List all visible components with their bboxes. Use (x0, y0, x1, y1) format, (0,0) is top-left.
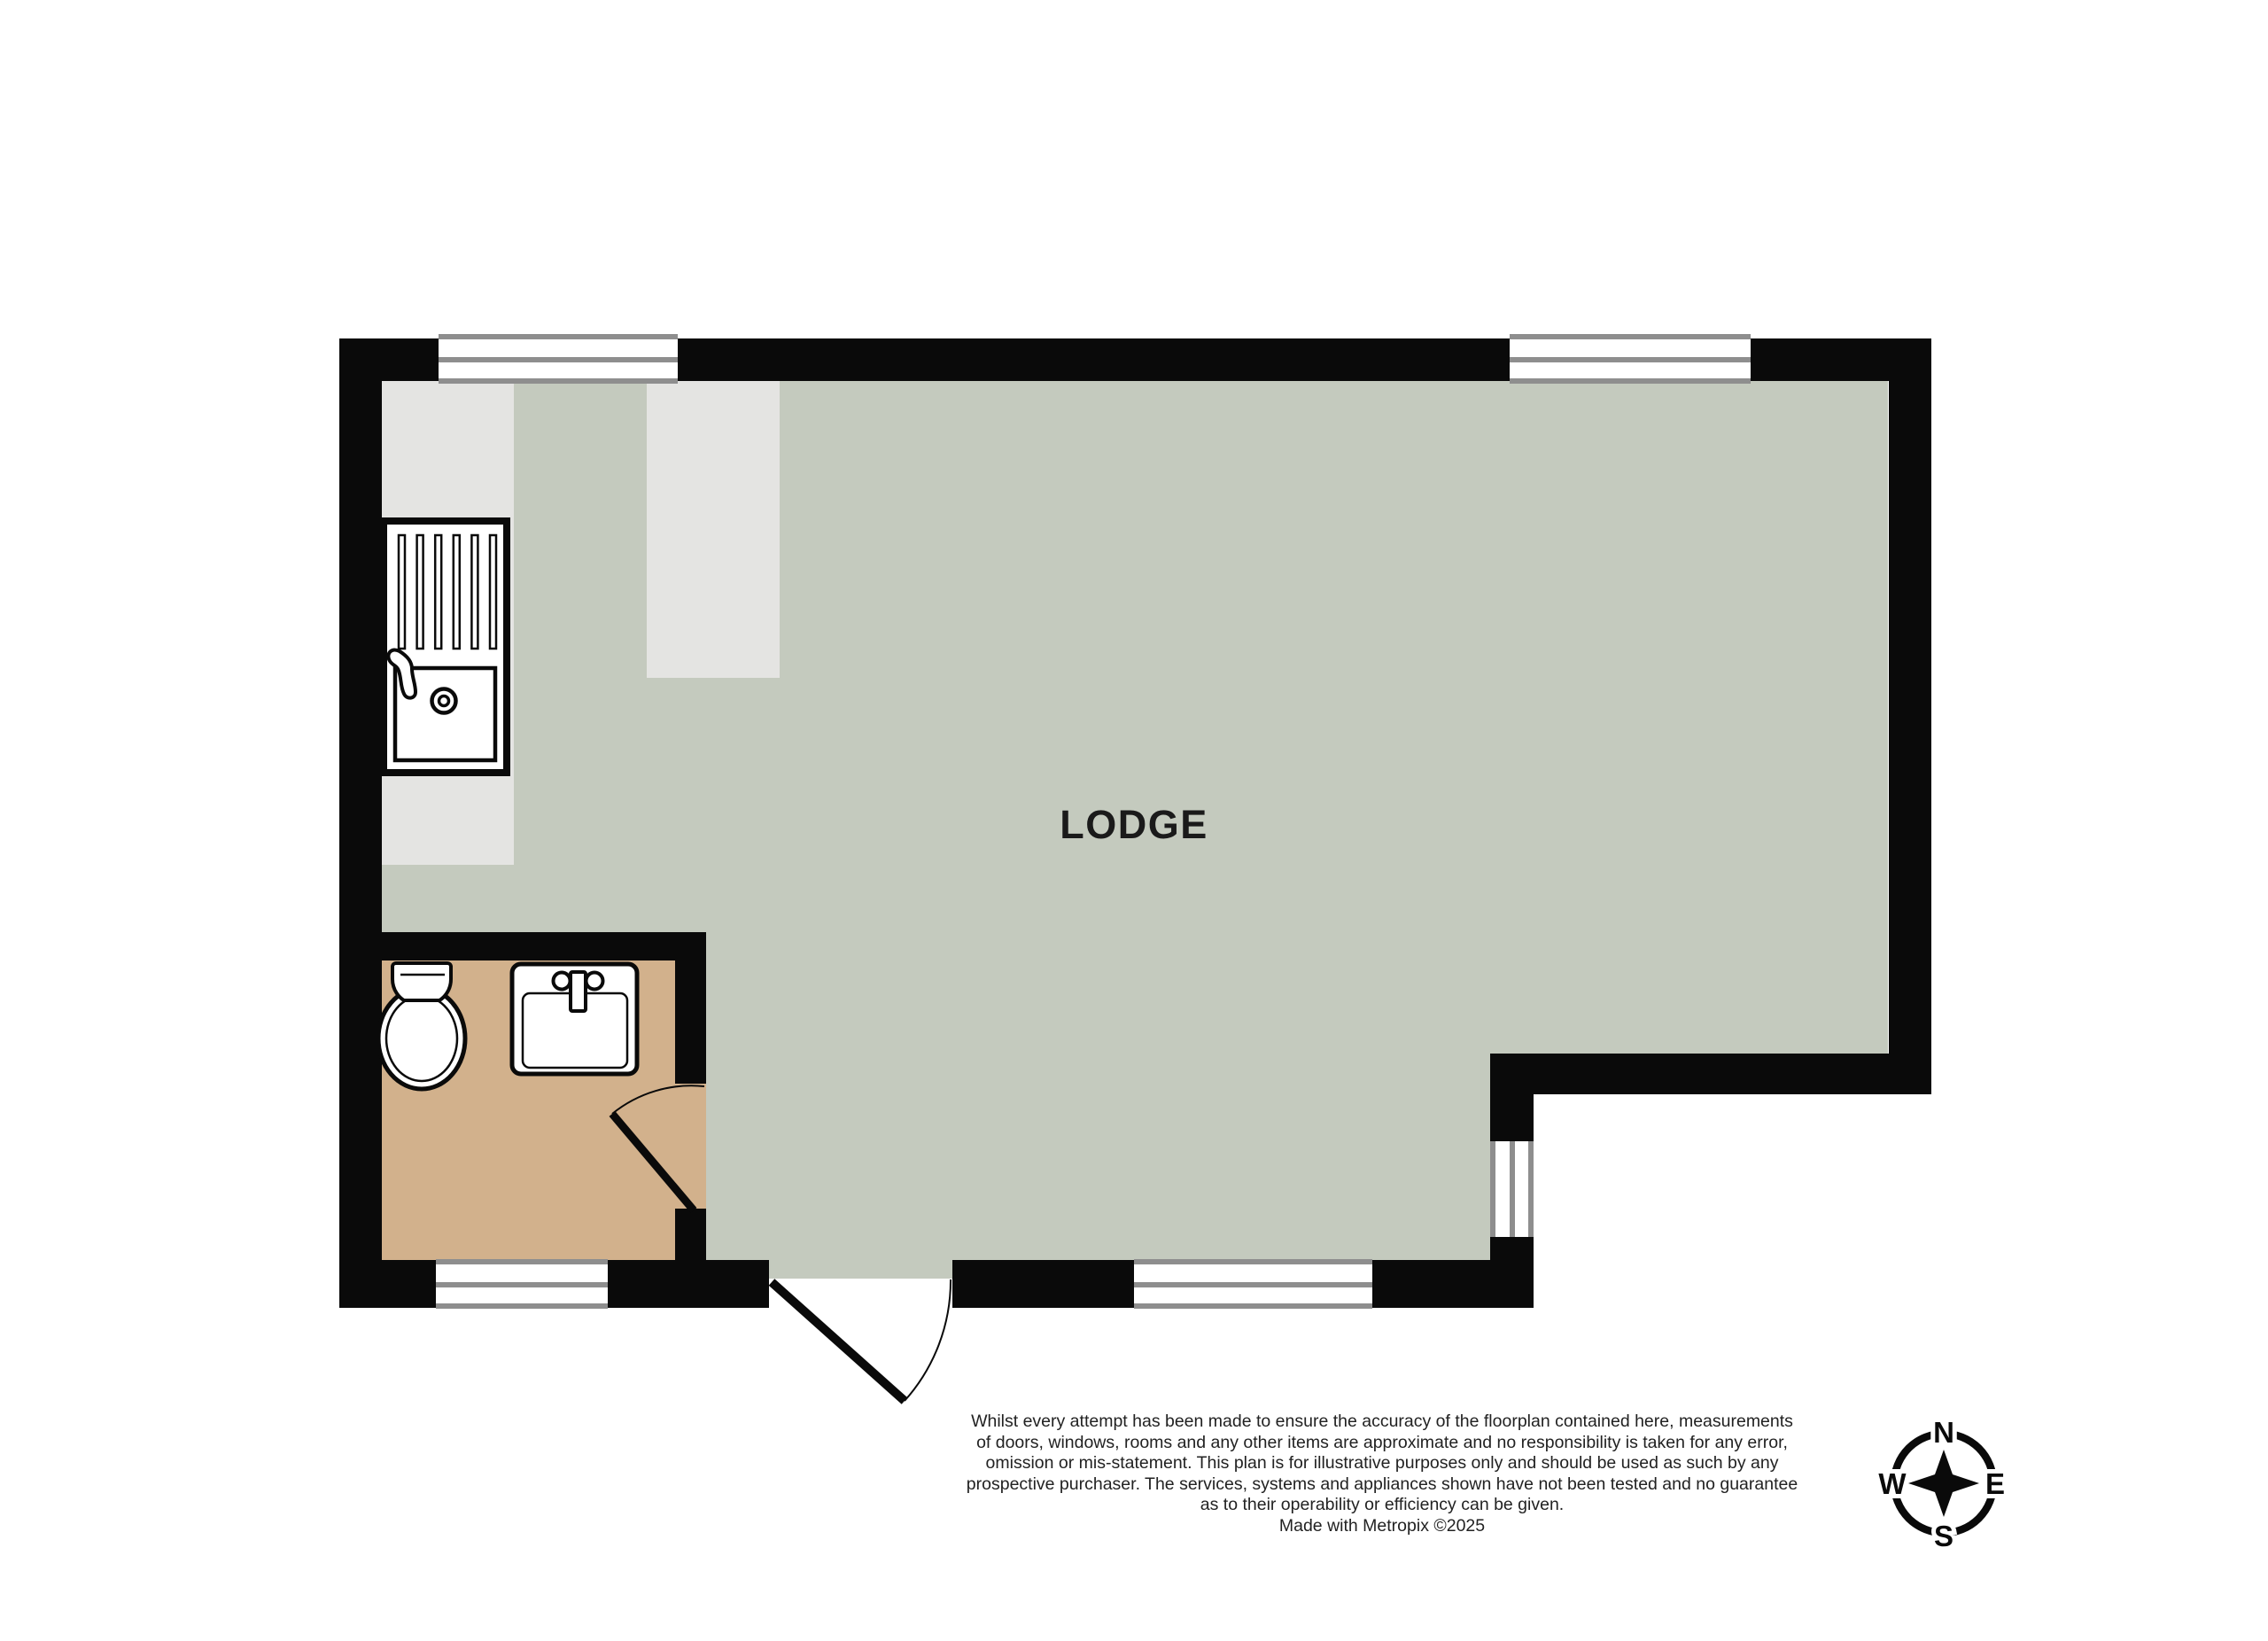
wall-bathroom-top (382, 932, 706, 960)
disclaimer-line: prospective purchaser. The services, sys… (886, 1474, 1878, 1496)
disclaimer-line: of doors, windows, rooms and any other i… (886, 1433, 1878, 1454)
window-bathroom (436, 1259, 608, 1309)
disclaimer-line: omission or mis-statement. This plan is … (886, 1453, 1878, 1474)
compass-icon: N E S W (1878, 1416, 2005, 1552)
room-label-lodge: LODGE (1001, 802, 1267, 848)
floorplan-canvas: N E S W LODGE Whilst every attempt has b… (0, 0, 2268, 1641)
disclaimer-line: Whilst every attempt has been made to en… (886, 1412, 1878, 1433)
window-side-notch (1490, 1141, 1534, 1237)
entrance-door-threshold (769, 1260, 952, 1279)
compass-east-label: E (1985, 1467, 2005, 1500)
kitchen-counter-block (647, 381, 780, 678)
wall-notch-horizontal (1490, 1054, 1931, 1094)
bathroom-door-gap (675, 1084, 706, 1209)
compass-south-label: S (1934, 1520, 1953, 1552)
compass-north-label: N (1933, 1416, 1954, 1449)
credit-line: Made with Metropix ©2025 (886, 1516, 1878, 1537)
window-top-right (1510, 334, 1751, 384)
kitchen-counter-left (382, 381, 514, 865)
wall-left (339, 338, 382, 1308)
bathroom-floor (382, 960, 675, 1260)
compass-west-label: W (1878, 1467, 1907, 1500)
disclaimer-text: Whilst every attempt has been made to en… (886, 1412, 1878, 1536)
window-bottom-main (1134, 1259, 1372, 1309)
window-top-left (439, 334, 678, 384)
disclaimer-line: as to their operability or efficiency ca… (886, 1495, 1878, 1516)
wall-right (1889, 338, 1931, 1094)
